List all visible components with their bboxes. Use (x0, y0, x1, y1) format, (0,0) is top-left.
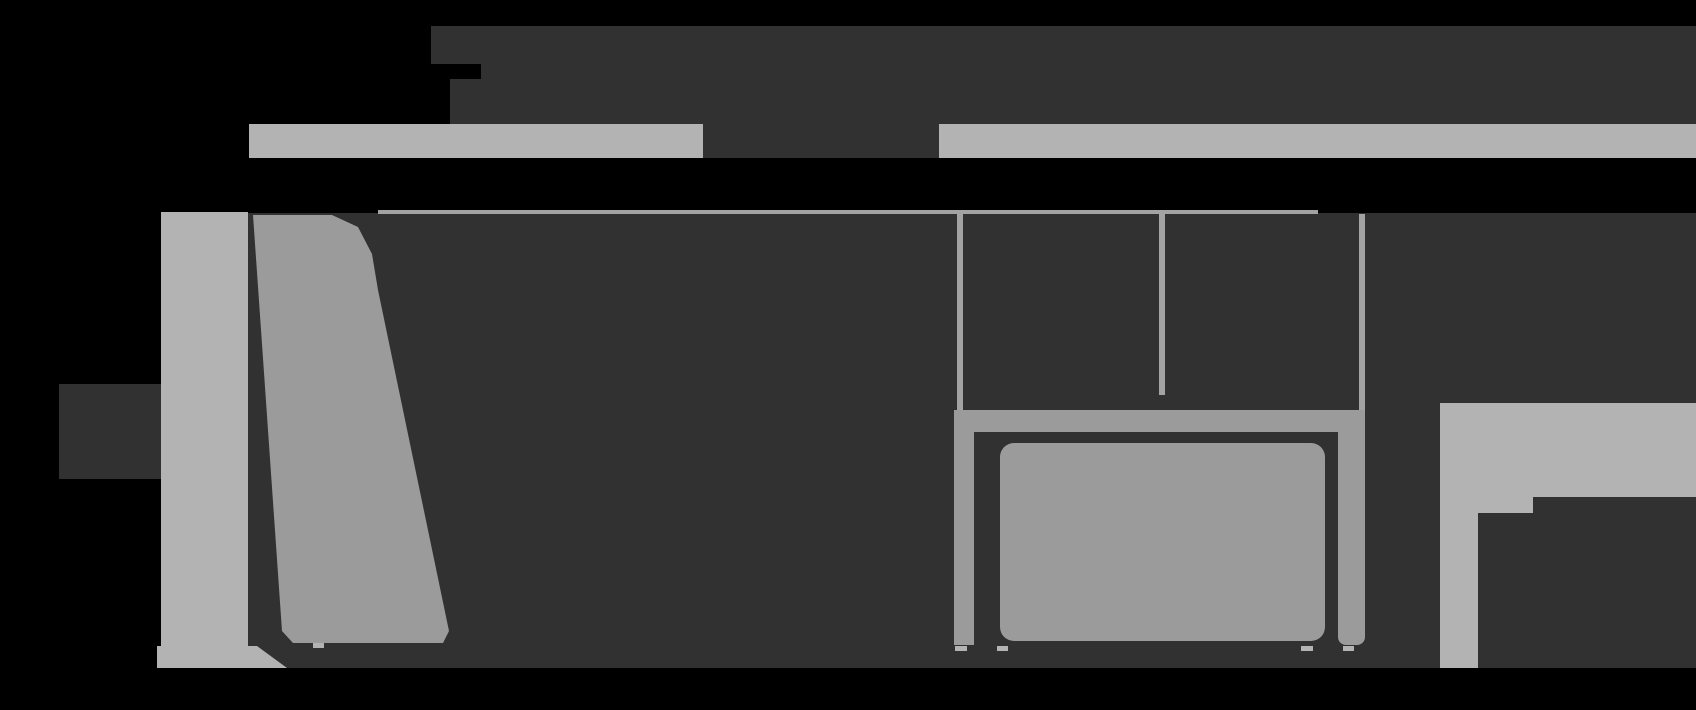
width-dimension-bar-gap (703, 124, 939, 158)
seat-frame-right-band (1338, 410, 1365, 645)
right-light-block (1440, 403, 1696, 497)
side-view-foot-glide (313, 643, 324, 648)
front-view-foot-glide (997, 646, 1008, 651)
top-label-band-segment (431, 26, 1696, 64)
width-dimension-bar-right (939, 124, 1696, 158)
front-view-frame-line-left (957, 214, 963, 437)
right-light-step (1478, 497, 1533, 513)
height-dimension-label-blob (59, 384, 164, 479)
top-label-band-segment (450, 79, 1696, 124)
width-dimension-bar-left (249, 124, 703, 158)
front-view-frame-line-right (1359, 214, 1365, 440)
front-view-foot-glide (955, 646, 967, 651)
front-view-frame-line-mid (1159, 214, 1165, 395)
seat-frame-left-band (954, 410, 974, 645)
front-view-foot-glide (1301, 646, 1313, 651)
front-view-foot-glide (1343, 646, 1354, 651)
seat-frame-top-band (968, 410, 1347, 432)
dimension-diagram (0, 0, 1696, 710)
top-label-band-segment (481, 64, 1696, 79)
right-light-bar (1440, 497, 1478, 668)
canvas-top-edge-line (378, 210, 1318, 214)
seat-cushion-front-view (1000, 443, 1325, 641)
